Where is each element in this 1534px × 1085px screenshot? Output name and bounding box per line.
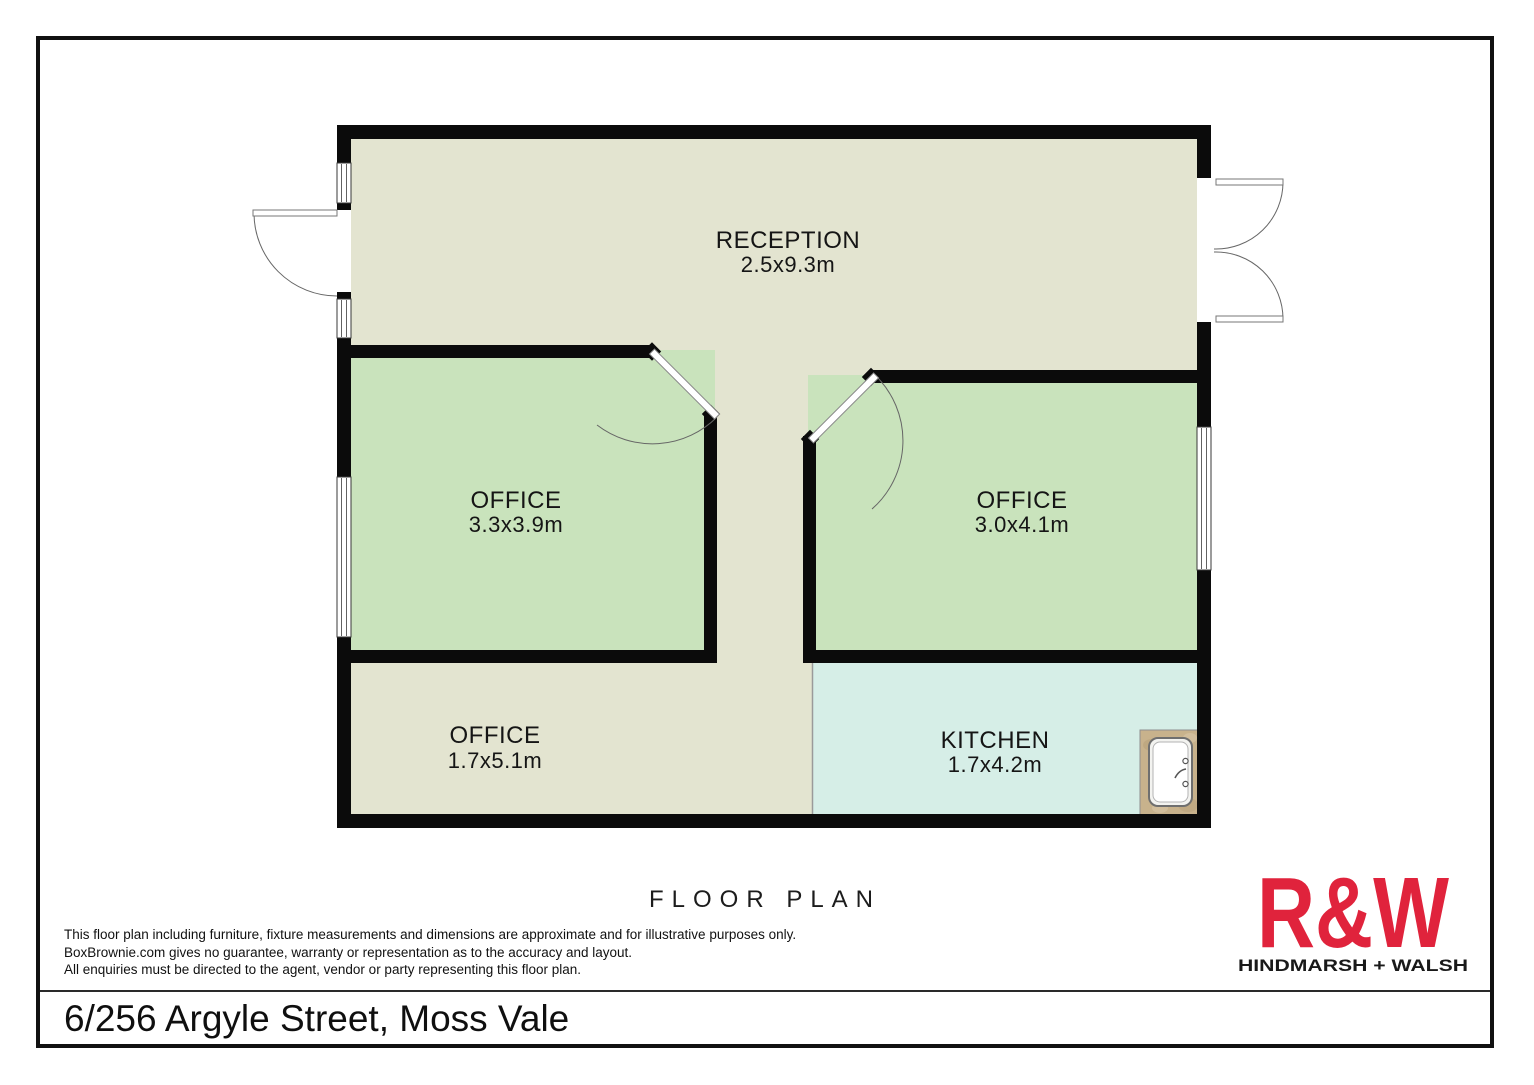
entry-door-left bbox=[253, 210, 351, 296]
disclaimer-line: All enquiries must be directed to the ag… bbox=[64, 961, 796, 979]
room-dims-office-bottom: 1.7x5.1m bbox=[448, 748, 543, 773]
footer-divider bbox=[40, 990, 1490, 992]
kitchen-counter bbox=[1140, 730, 1198, 815]
page-frame: RECEPTION 2.5x9.3m OFFICE 3.3x3.9m OFFIC… bbox=[36, 36, 1494, 1048]
room-dims-office-left: 3.3x3.9m bbox=[469, 512, 564, 537]
room-dims-office-right: 3.0x4.1m bbox=[975, 512, 1070, 537]
agency-name: HINDMARSH + WALSH bbox=[1238, 957, 1468, 975]
disclaimer-line: This floor plan including furniture, fix… bbox=[64, 926, 796, 944]
room-label-kitchen: KITCHEN bbox=[941, 727, 1050, 754]
room-label-reception: RECEPTION bbox=[716, 227, 861, 254]
entry-double-door-right bbox=[1197, 178, 1283, 322]
room-dims-kitchen: 1.7x4.2m bbox=[948, 752, 1043, 777]
window bbox=[337, 477, 351, 637]
logo-monogram: R&W bbox=[1257, 865, 1449, 969]
property-address: 6/256 Argyle Street, Moss Vale bbox=[64, 998, 1466, 1040]
room-dims-reception: 2.5x9.3m bbox=[741, 252, 836, 277]
window bbox=[337, 299, 351, 338]
window bbox=[1197, 427, 1211, 570]
window bbox=[337, 163, 351, 203]
sink-tap-knob bbox=[1183, 758, 1188, 763]
disclaimer-text: This floor plan including furniture, fix… bbox=[64, 926, 796, 979]
agency-logo: R&W HINDMARSH + WALSH bbox=[1228, 865, 1478, 977]
disclaimer-line: BoxBrownie.com gives no guarantee, warra… bbox=[64, 944, 796, 962]
room-label-office-left: OFFICE bbox=[471, 487, 562, 514]
room-label-office-right: OFFICE bbox=[977, 487, 1068, 514]
kitchen-sink bbox=[1149, 738, 1192, 806]
floor-plan-drawing: RECEPTION 2.5x9.3m OFFICE 3.3x3.9m OFFIC… bbox=[240, 120, 1300, 830]
room-label-office-bottom: OFFICE bbox=[450, 722, 541, 749]
sink-tap-knob bbox=[1183, 781, 1188, 786]
